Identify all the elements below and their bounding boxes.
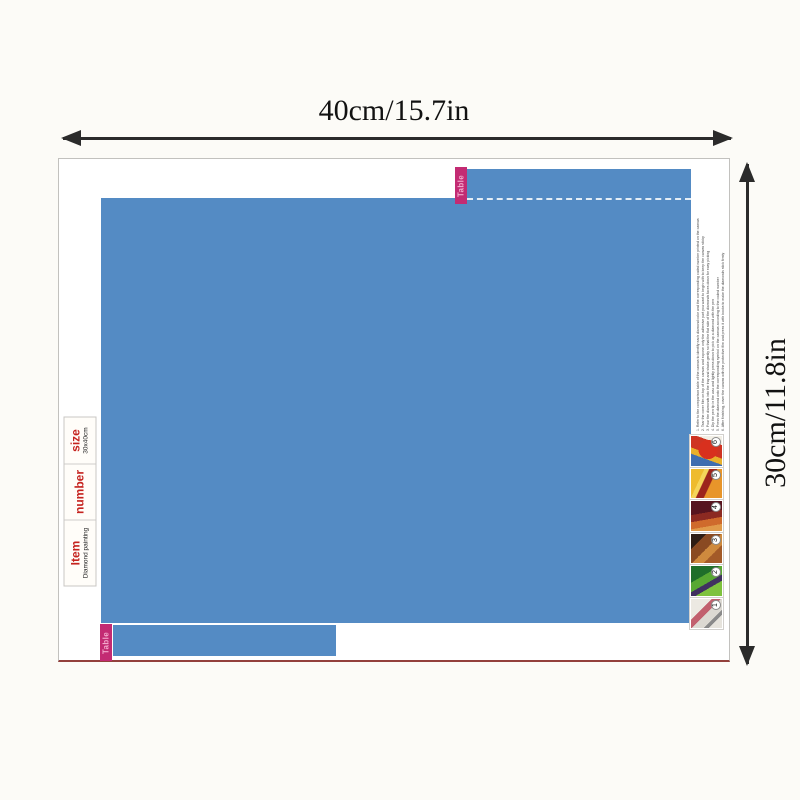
- step-number-badge: 3: [711, 535, 721, 545]
- info-size-label: size: [69, 429, 82, 452]
- info-size-value: 30x40cm: [82, 427, 90, 453]
- artwork-area: [101, 198, 691, 623]
- step-number-badge: 1: [711, 600, 721, 610]
- step-number-badge: 4: [711, 502, 721, 512]
- step-photo-4: 4: [689, 500, 724, 533]
- step-photo-5: 5: [689, 468, 724, 501]
- top-table-tab-label: Table: [455, 167, 467, 204]
- width-dimension-arrow: [63, 137, 731, 140]
- step-number-badge: 5: [711, 470, 721, 480]
- step-photos-panel: 6 5 4 3 2 1: [689, 434, 724, 630]
- step-photo-2: 2: [689, 565, 724, 598]
- bottom-table-tab-strip: [113, 625, 336, 656]
- instructions-panel: 1. Refer to the comparison table of the …: [696, 214, 729, 431]
- height-dimension-arrow: [746, 164, 749, 664]
- info-table-col-item: Item Diamond painting: [64, 520, 95, 585]
- info-table-col-size: size 30x40cm: [64, 417, 95, 464]
- height-dimension-label: 30cm/11.8in: [758, 328, 794, 498]
- instruction-line: 6. After finishing, cover the canvas wit…: [721, 214, 726, 431]
- kit-canvas-sheet: Table Table Item Diamond painting number…: [58, 158, 730, 662]
- info-item-label: Item: [69, 540, 82, 565]
- step-photo-6: 6: [689, 434, 724, 468]
- arrowhead-down-icon: [739, 646, 755, 666]
- info-number-label: number: [73, 470, 86, 514]
- bottom-table-tab: Table: [100, 624, 112, 661]
- arrowhead-left-icon: [61, 130, 81, 146]
- step-number-badge: 6: [711, 437, 721, 447]
- top-table-tab-strip: [467, 169, 691, 200]
- top-table-tab: Table: [455, 167, 467, 204]
- arrowhead-up-icon: [739, 162, 755, 182]
- info-item-value: Diamond painting: [82, 527, 90, 578]
- step-photo-3: 3: [689, 533, 724, 566]
- info-table-col-number: number: [64, 464, 95, 520]
- width-dimension-label: 40cm/15.7in: [0, 94, 788, 128]
- product-diagram: 40cm/15.7in 30cm/11.8in Table Table Item…: [0, 0, 800, 800]
- step-photo-1: 1: [689, 598, 724, 631]
- arrowhead-right-icon: [713, 130, 733, 146]
- info-table: Item Diamond painting number size 30x40c…: [63, 416, 96, 586]
- bottom-table-tab-label: Table: [100, 624, 112, 661]
- step-number-badge: 2: [711, 567, 721, 577]
